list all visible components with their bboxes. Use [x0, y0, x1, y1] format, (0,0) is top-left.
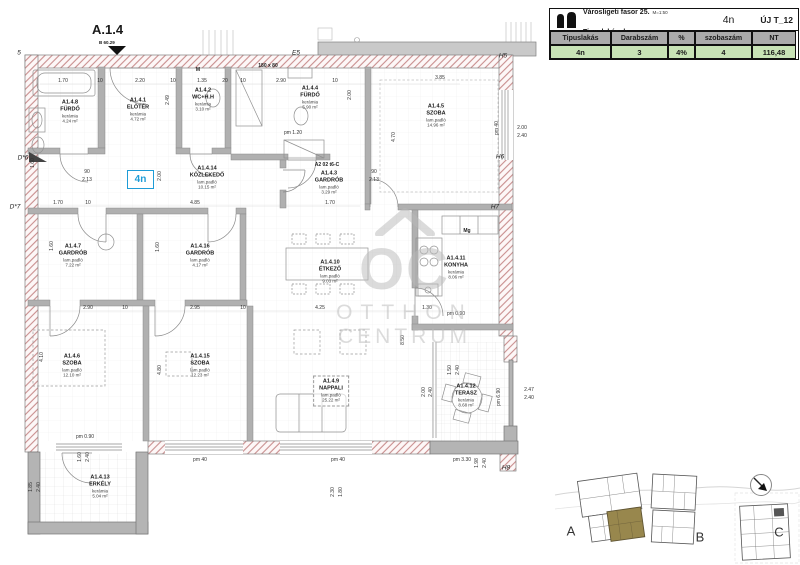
- site-building-a: [577, 473, 645, 545]
- buildings-logo-icon: [554, 11, 580, 28]
- table-header-Tipuslakás: Tipuslakás: [550, 31, 611, 45]
- section-marker-label: A.1.4: [92, 22, 123, 37]
- unit-type-badge: 4n: [127, 170, 154, 189]
- table-value: 3: [611, 45, 668, 59]
- section-marker-sublabel: B 60.29: [99, 40, 115, 45]
- site-building-c: [740, 504, 791, 560]
- unit-info-table: Városligeti fasor 25.M=1:50 Tipuslakások…: [549, 8, 799, 60]
- section-marker-triangle-icon: [108, 46, 126, 55]
- terrace-tiles: [437, 342, 509, 441]
- table-value: 4n: [550, 45, 611, 59]
- table-header-szobaszám: szobaszám: [695, 31, 752, 45]
- table-value: 4%: [668, 45, 695, 59]
- site-highlighted-unit: [607, 507, 645, 541]
- info-table-header-row: TipuslakásDarabszám%szobaszámNT: [550, 31, 798, 45]
- site-plan: [555, 473, 800, 563]
- info-table-titlebar: Városligeti fasor 25.M=1:50 Tipuslakások…: [550, 9, 798, 31]
- floorplan-drawing: [0, 0, 800, 565]
- north-arrow-icon: [751, 475, 772, 496]
- floorplan-sheet: A.1.4 B 60.29 4n A1.4.8FÜRDŐkerámia4.24 …: [0, 0, 800, 565]
- table-header-NT: NT: [752, 31, 796, 45]
- table-value: 116,48: [752, 45, 796, 59]
- unit-type-label: 4n: [723, 14, 735, 26]
- site-building-b: [649, 474, 696, 544]
- floor-grid: [38, 67, 500, 441]
- drawing-scale: M=1:50: [653, 10, 668, 15]
- info-table-value-row: 4n34%4116,48: [550, 45, 798, 59]
- sheet-number: ÚJ T_12: [760, 15, 793, 25]
- table-header-Darabszám: Darabszám: [611, 31, 668, 45]
- table-value: 4: [695, 45, 752, 59]
- table-header-%: %: [668, 31, 695, 45]
- balcony-tiles: [40, 452, 136, 522]
- project-name: Városligeti fasor 25.: [583, 9, 650, 16]
